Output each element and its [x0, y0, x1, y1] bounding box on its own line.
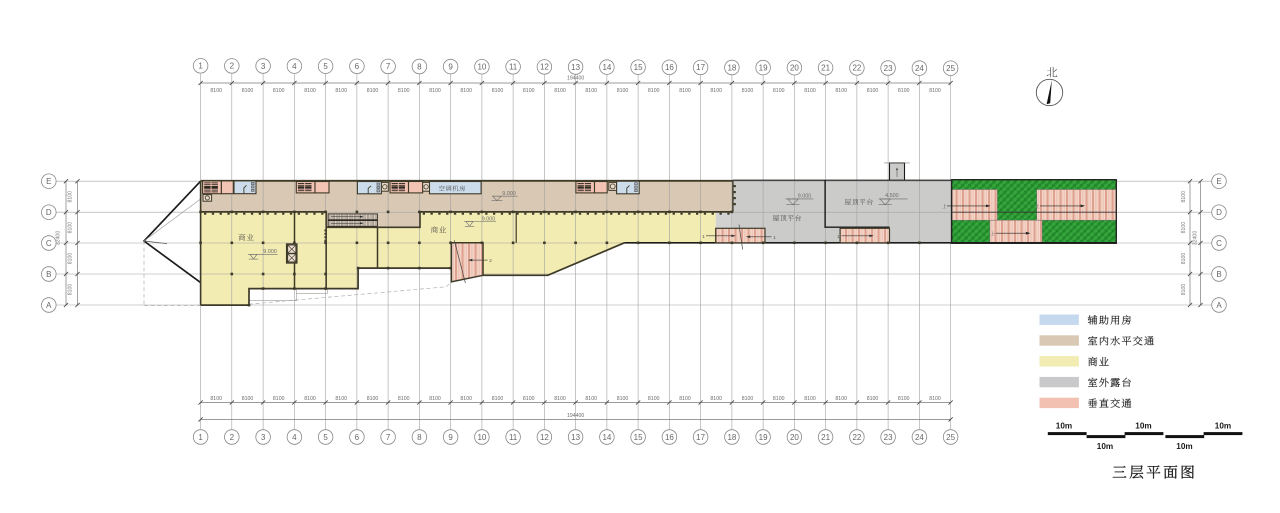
svg-text:8100: 8100 — [335, 88, 347, 94]
svg-text:25: 25 — [946, 64, 955, 73]
svg-text:8100: 8100 — [210, 88, 222, 94]
svg-text:21: 21 — [821, 433, 830, 442]
svg-text:5: 5 — [323, 62, 328, 71]
svg-text:8100: 8100 — [742, 396, 754, 402]
svg-text:D: D — [46, 208, 52, 217]
svg-text:A: A — [1216, 301, 1222, 310]
svg-text:9: 9 — [448, 62, 453, 71]
svg-text:10: 10 — [477, 433, 486, 442]
svg-text:8100: 8100 — [554, 396, 566, 402]
svg-text:8: 8 — [417, 62, 422, 71]
svg-text:C: C — [1216, 239, 1222, 248]
svg-text:7: 7 — [386, 433, 391, 442]
svg-text:5: 5 — [323, 433, 328, 442]
svg-text:10m: 10m — [1215, 421, 1231, 430]
svg-text:8100: 8100 — [335, 396, 347, 402]
svg-text:194400: 194400 — [567, 76, 584, 82]
svg-text:8100: 8100 — [867, 88, 879, 94]
svg-text:1: 1 — [198, 62, 203, 71]
svg-text:8100: 8100 — [929, 88, 941, 94]
svg-text:11: 11 — [509, 63, 518, 72]
svg-text:8100: 8100 — [867, 396, 879, 402]
svg-text:8100: 8100 — [68, 253, 74, 265]
svg-text:C: C — [46, 239, 52, 248]
svg-text:B: B — [46, 270, 51, 279]
svg-text:1: 1 — [198, 433, 203, 442]
svg-text:2: 2 — [230, 62, 235, 71]
svg-text:11: 11 — [509, 433, 518, 442]
svg-text:8100: 8100 — [523, 396, 535, 402]
svg-text:21: 21 — [821, 64, 830, 73]
svg-text:4.500: 4.500 — [885, 193, 899, 199]
svg-text:8100: 8100 — [617, 88, 629, 94]
svg-text:3: 3 — [261, 62, 266, 71]
svg-text:32400: 32400 — [1192, 231, 1198, 246]
svg-text:8100: 8100 — [398, 88, 410, 94]
svg-text:8100: 8100 — [1181, 222, 1187, 234]
svg-text:8100: 8100 — [429, 88, 441, 94]
svg-text:8100: 8100 — [1181, 253, 1187, 265]
svg-text:8100: 8100 — [367, 88, 379, 94]
svg-text:16: 16 — [665, 433, 674, 442]
svg-text:20: 20 — [790, 433, 799, 442]
svg-text:8100: 8100 — [898, 396, 910, 402]
svg-text:8100: 8100 — [710, 88, 722, 94]
svg-text:24: 24 — [915, 64, 924, 73]
svg-text:8100: 8100 — [1181, 284, 1187, 296]
svg-text:8100: 8100 — [804, 396, 816, 402]
svg-text:25: 25 — [946, 433, 955, 442]
svg-text:8100: 8100 — [710, 396, 722, 402]
svg-text:E: E — [1216, 177, 1221, 186]
svg-text:194400: 194400 — [567, 413, 584, 419]
svg-text:9: 9 — [448, 433, 453, 442]
svg-text:8100: 8100 — [898, 88, 910, 94]
svg-text:7: 7 — [386, 62, 391, 71]
svg-text:3: 3 — [261, 433, 266, 442]
svg-text:22: 22 — [852, 64, 861, 73]
svg-text:8: 8 — [417, 433, 422, 442]
svg-text:8100: 8100 — [554, 88, 566, 94]
svg-text:2: 2 — [230, 433, 235, 442]
svg-text:8100: 8100 — [398, 396, 410, 402]
svg-text:8100: 8100 — [304, 88, 316, 94]
svg-text:16: 16 — [665, 63, 674, 72]
svg-text:17: 17 — [696, 433, 705, 442]
svg-text:19: 19 — [759, 63, 768, 72]
svg-text:10m: 10m — [1176, 442, 1192, 451]
svg-text:8100: 8100 — [617, 396, 629, 402]
svg-text:13: 13 — [571, 63, 580, 72]
svg-text:6: 6 — [355, 62, 360, 71]
svg-text:18: 18 — [727, 433, 736, 442]
svg-text:8100: 8100 — [273, 396, 285, 402]
svg-text:10m: 10m — [1135, 421, 1151, 430]
svg-text:D: D — [1216, 208, 1222, 217]
svg-text:8100: 8100 — [460, 88, 472, 94]
svg-text:8100: 8100 — [460, 396, 472, 402]
svg-text:8100: 8100 — [68, 284, 74, 296]
svg-text:8100: 8100 — [648, 396, 660, 402]
svg-text:8100: 8100 — [742, 88, 754, 94]
svg-text:8100: 8100 — [679, 396, 691, 402]
svg-text:20: 20 — [790, 64, 799, 73]
svg-text:23: 23 — [884, 64, 893, 73]
svg-text:8100: 8100 — [585, 88, 597, 94]
svg-text:8100: 8100 — [804, 88, 816, 94]
svg-text:15: 15 — [634, 433, 643, 442]
svg-text:8100: 8100 — [429, 396, 441, 402]
svg-text:23: 23 — [884, 433, 893, 442]
svg-text:19: 19 — [759, 433, 768, 442]
svg-text:8100: 8100 — [304, 396, 316, 402]
svg-text:E: E — [46, 177, 51, 186]
svg-text:18: 18 — [727, 63, 736, 72]
svg-text:8100: 8100 — [492, 396, 504, 402]
svg-text:14: 14 — [602, 63, 611, 72]
svg-text:8100: 8100 — [68, 222, 74, 234]
svg-text:A: A — [46, 301, 52, 310]
svg-text:8100: 8100 — [1181, 191, 1187, 203]
svg-text:6: 6 — [355, 433, 360, 442]
svg-text:4: 4 — [292, 62, 297, 71]
svg-text:8100: 8100 — [367, 396, 379, 402]
svg-text:10: 10 — [477, 63, 486, 72]
svg-text:8100: 8100 — [68, 191, 74, 203]
svg-text:4: 4 — [292, 433, 297, 442]
svg-text:8100: 8100 — [679, 88, 691, 94]
svg-text:B: B — [1216, 270, 1221, 279]
svg-text:8100: 8100 — [523, 88, 535, 94]
svg-text:13: 13 — [571, 433, 580, 442]
svg-text:24: 24 — [915, 433, 924, 442]
svg-text:8100: 8100 — [773, 88, 785, 94]
svg-text:12: 12 — [540, 63, 549, 72]
svg-text:8100: 8100 — [648, 88, 660, 94]
svg-text:8100: 8100 — [835, 88, 847, 94]
svg-text:8100: 8100 — [242, 88, 254, 94]
svg-text:15: 15 — [634, 63, 643, 72]
svg-text:8100: 8100 — [210, 396, 222, 402]
svg-text:17: 17 — [696, 63, 705, 72]
svg-text:8100: 8100 — [585, 396, 597, 402]
svg-text:8100: 8100 — [773, 396, 785, 402]
svg-text:12: 12 — [540, 433, 549, 442]
svg-text:8100: 8100 — [835, 396, 847, 402]
svg-text:10m: 10m — [1097, 442, 1113, 451]
svg-text:22: 22 — [852, 433, 861, 442]
svg-text:8100: 8100 — [492, 88, 504, 94]
svg-text:10m: 10m — [1056, 421, 1072, 430]
svg-text:8100: 8100 — [242, 396, 254, 402]
svg-text:8100: 8100 — [273, 88, 285, 94]
svg-text:8100: 8100 — [929, 396, 941, 402]
svg-text:14: 14 — [602, 433, 611, 442]
